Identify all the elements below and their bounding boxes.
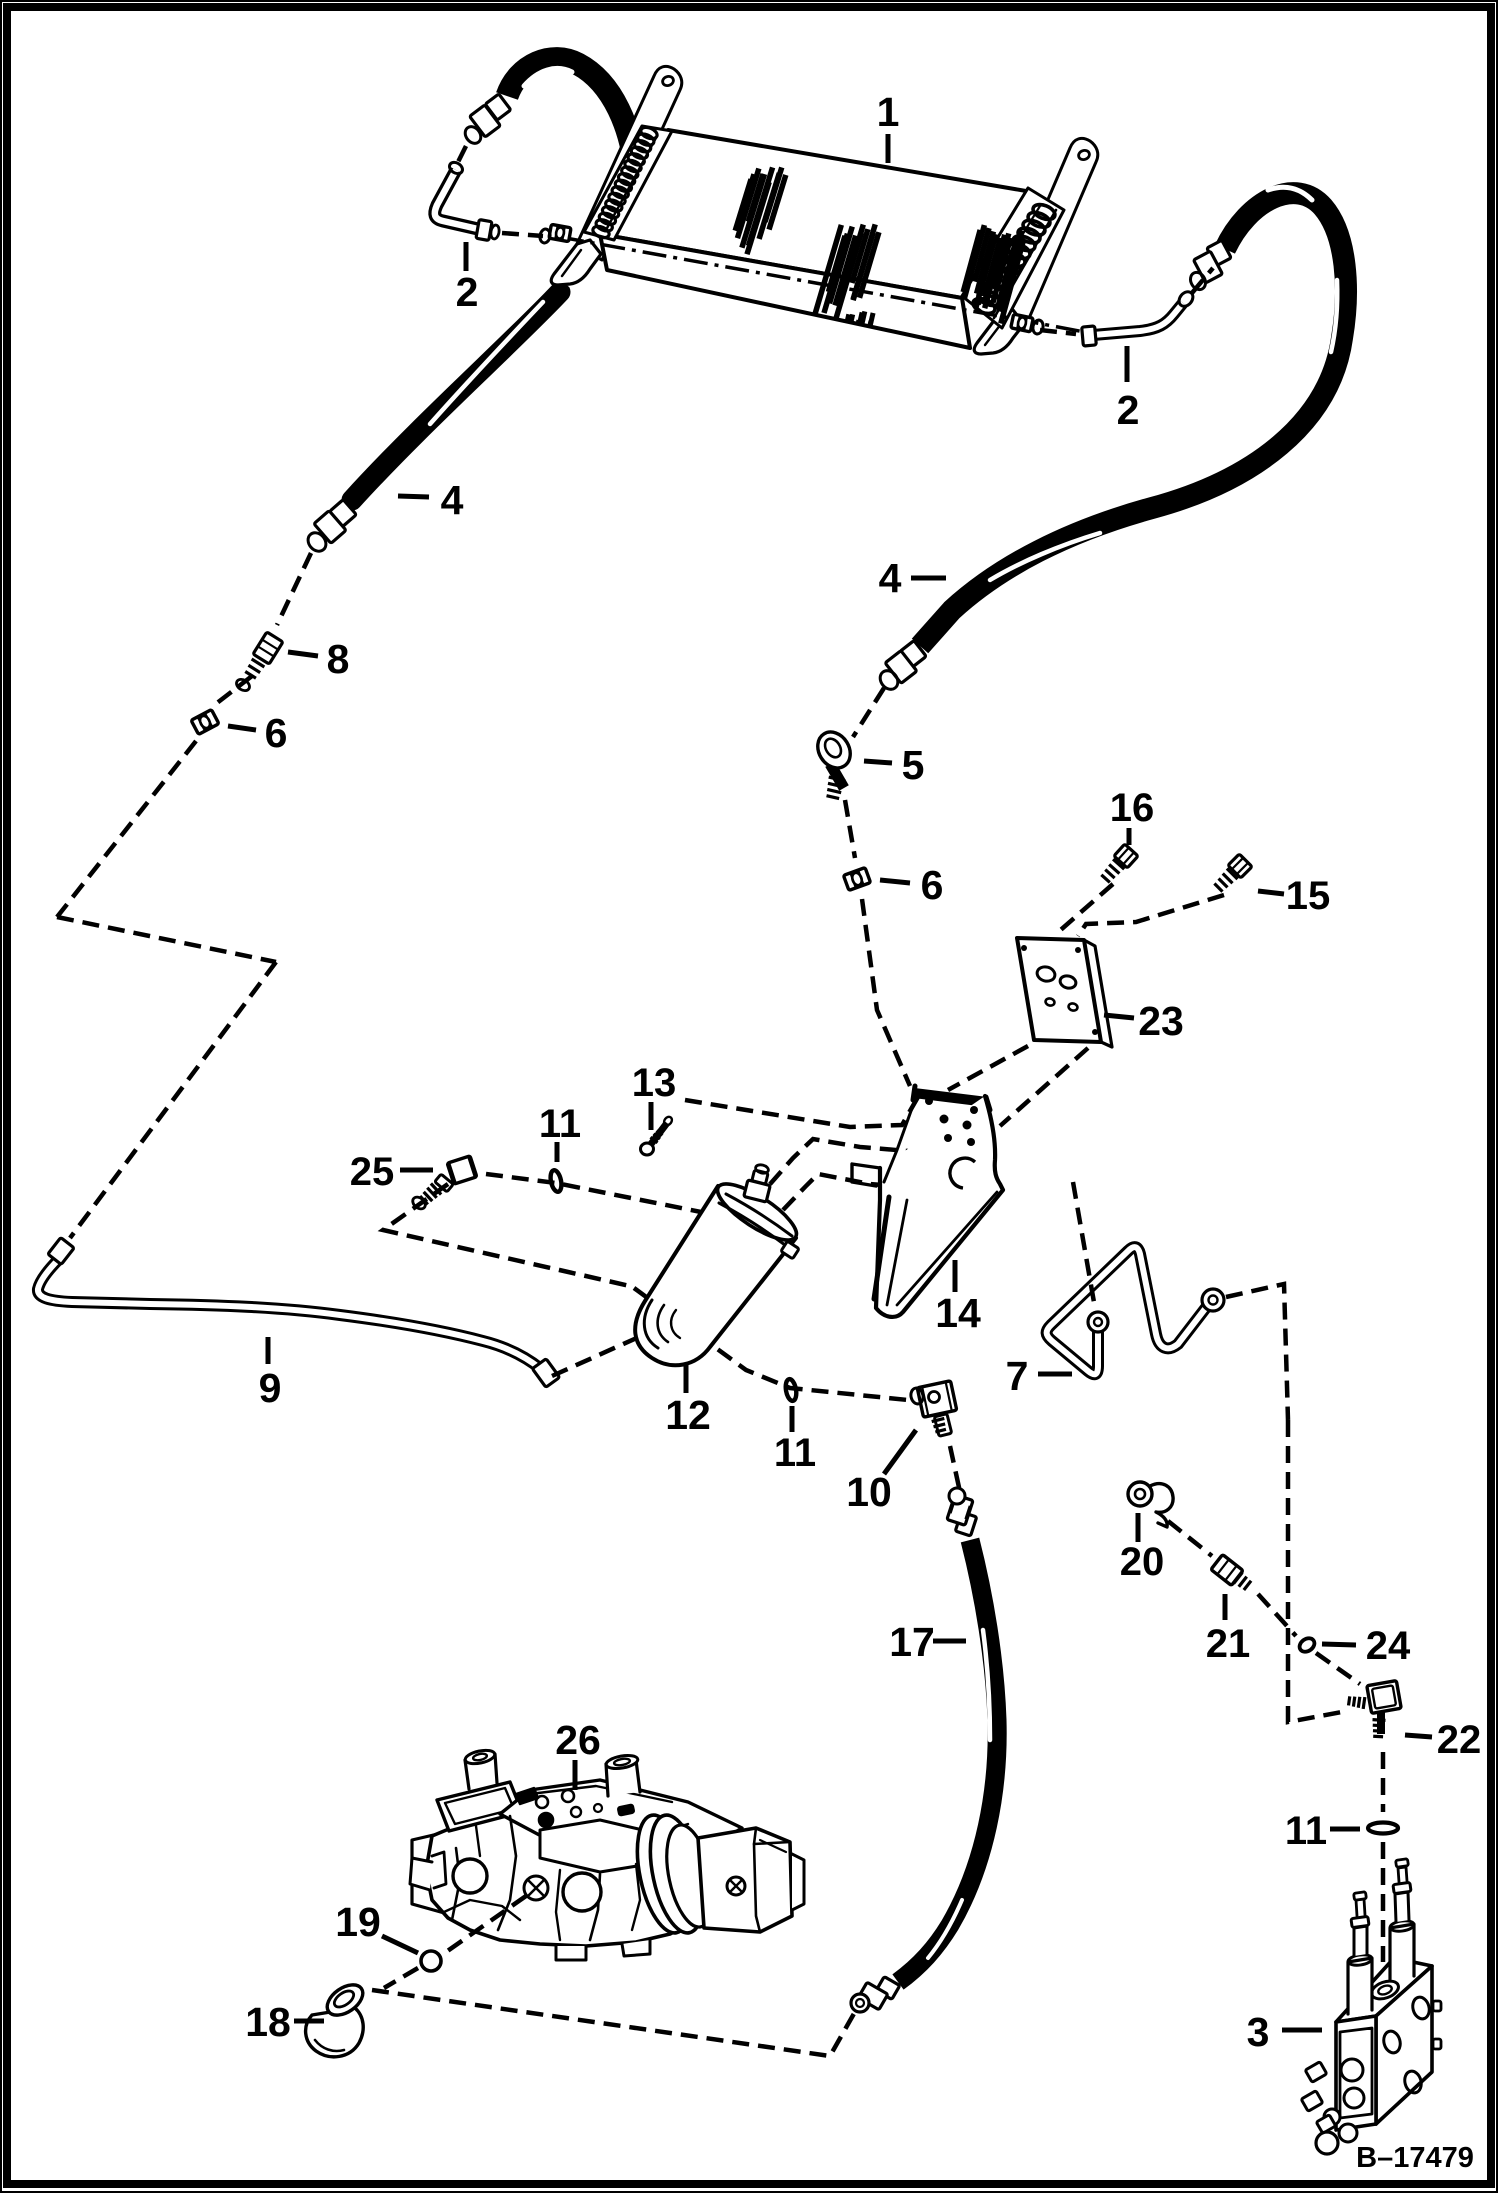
- svg-text:24: 24: [1366, 1624, 1411, 1668]
- svg-text:2: 2: [1117, 387, 1140, 433]
- svg-text:11: 11: [539, 1102, 581, 1146]
- svg-text:23: 23: [1138, 998, 1184, 1044]
- svg-text:19: 19: [335, 1899, 381, 1945]
- svg-text:18: 18: [245, 1999, 291, 2045]
- svg-text:12: 12: [665, 1392, 711, 1438]
- svg-text:16: 16: [1110, 786, 1155, 830]
- svg-text:4: 4: [441, 477, 464, 523]
- svg-text:11: 11: [774, 1431, 816, 1475]
- svg-text:6: 6: [921, 862, 944, 908]
- svg-text:3: 3: [1247, 2009, 1270, 2055]
- svg-text:15: 15: [1286, 874, 1331, 918]
- svg-text:11: 11: [1285, 1809, 1327, 1853]
- svg-text:25: 25: [350, 1150, 395, 1194]
- svg-text:6: 6: [265, 710, 288, 756]
- svg-text:26: 26: [555, 1717, 601, 1763]
- svg-text:9: 9: [259, 1365, 282, 1411]
- svg-text:13: 13: [632, 1061, 677, 1105]
- svg-text:1: 1: [877, 89, 900, 135]
- svg-text:4: 4: [879, 555, 902, 601]
- svg-text:17: 17: [889, 1619, 935, 1665]
- svg-text:B–17479: B–17479: [1356, 2142, 1474, 2174]
- svg-text:14: 14: [935, 1290, 981, 1336]
- svg-text:7: 7: [1006, 1353, 1029, 1399]
- svg-text:2: 2: [456, 269, 479, 315]
- svg-text:21: 21: [1206, 1622, 1251, 1666]
- svg-text:8: 8: [327, 636, 350, 682]
- svg-text:10: 10: [846, 1469, 892, 1515]
- svg-text:20: 20: [1120, 1540, 1165, 1584]
- svg-text:5: 5: [902, 742, 925, 788]
- svg-text:22: 22: [1437, 1718, 1482, 1762]
